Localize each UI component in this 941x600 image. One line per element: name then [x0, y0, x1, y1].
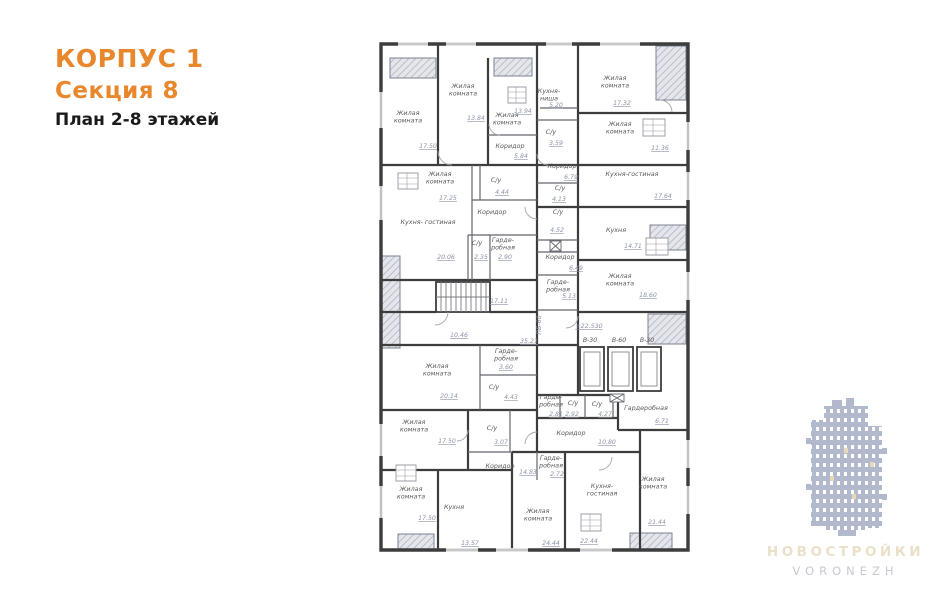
svg-text:комната: комната — [426, 177, 454, 185]
section-title: Секция 8 — [55, 78, 219, 104]
floorplan-page: КОРПУС 1 Секция 8 План 2-8 этажей — [0, 0, 941, 600]
svg-text:17.50: 17.50 — [438, 438, 456, 445]
svg-text:13.57: 13.57 — [461, 540, 479, 547]
svg-text:комната: комната — [423, 369, 451, 377]
balcony-top-right — [656, 46, 686, 100]
svg-text:3.59: 3.59 — [549, 140, 563, 147]
svg-text:комната: комната — [493, 118, 521, 126]
svg-text:Коридор: Коридор — [556, 429, 585, 437]
svg-text:С/у: С/у — [555, 184, 566, 192]
svg-text:35.21: 35.21 — [520, 338, 538, 345]
svg-text:Кухня-гостиная: Кухня-гостиная — [605, 170, 658, 178]
svg-text:13.84: 13.84 — [467, 115, 485, 122]
svg-text:6.79: 6.79 — [564, 174, 578, 181]
svg-text:ПБ-60: ПБ-60 — [536, 315, 543, 334]
elevators — [580, 347, 661, 391]
svg-text:робная: робная — [490, 243, 515, 251]
svg-text:В-30: В-30 — [583, 337, 597, 344]
svg-text:2.92: 2.92 — [565, 411, 579, 418]
svg-text:6.49: 6.49 — [569, 265, 583, 272]
svg-text:С/у: С/у — [472, 239, 483, 247]
svg-text:11.36: 11.36 — [651, 145, 669, 152]
svg-text:В-60: В-60 — [612, 337, 626, 344]
plan-subtitle: План 2-8 этажей — [55, 110, 219, 130]
svg-text:комната: комната — [449, 89, 477, 97]
svg-text:2.72: 2.72 — [550, 471, 564, 478]
svg-text:2.81: 2.81 — [549, 411, 563, 418]
svg-text:комната: комната — [400, 425, 428, 433]
svg-text:Коридор: Коридор — [477, 208, 506, 216]
svg-text:робная: робная — [493, 354, 518, 362]
svg-text:Гардеробная: Гардеробная — [624, 404, 668, 412]
svg-text:3.60: 3.60 — [499, 364, 513, 371]
svg-text:13.94: 13.94 — [514, 108, 532, 115]
svg-text:комната: комната — [524, 514, 552, 522]
svg-text:робная: робная — [538, 461, 563, 469]
svg-text:17.11: 17.11 — [490, 298, 508, 305]
svg-text:17.64: 17.64 — [654, 193, 672, 200]
elevator-labels: В-30В-60В-30 — [583, 337, 654, 344]
svg-text:17.32: 17.32 — [613, 100, 631, 107]
watermark-title: НОВОСТРОЙКИ — [758, 544, 933, 560]
svg-text:10.46: 10.46 — [450, 332, 468, 339]
svg-text:Коридор: Коридор — [547, 162, 576, 170]
floorplan-drawing: Жилаякомната17.50Жилаякомната13.84Жилаяк… — [368, 28, 698, 562]
svg-text:комната: комната — [606, 127, 634, 135]
svg-text:Кухня: Кухня — [444, 503, 464, 511]
balcony-bottom-left — [398, 534, 434, 549]
svg-text:Коридор: Коридор — [495, 142, 524, 150]
svg-text:22.44: 22.44 — [580, 538, 598, 545]
staircase — [436, 282, 490, 312]
svg-text:С/у: С/у — [491, 176, 502, 184]
svg-text:В-30: В-30 — [640, 337, 654, 344]
svg-text:С/у: С/у — [568, 399, 579, 407]
svg-text:5.84: 5.84 — [514, 153, 528, 160]
svg-text:Коридор: Коридор — [545, 253, 574, 261]
svg-text:3.07: 3.07 — [494, 439, 508, 446]
svg-text:4.43: 4.43 — [504, 394, 518, 401]
svg-text:5.20: 5.20 — [549, 102, 563, 109]
svg-text:14.83: 14.83 — [519, 469, 537, 476]
svg-text:комната: комната — [394, 116, 422, 124]
svg-text:2.35: 2.35 — [474, 254, 488, 261]
svg-text:5.13: 5.13 — [562, 293, 576, 300]
svg-text:Кухня: Кухня — [606, 226, 626, 234]
balcony-bottom-right — [630, 533, 672, 549]
svg-text:18.60: 18.60 — [639, 292, 657, 299]
svg-text:6.71: 6.71 — [655, 418, 669, 425]
building-title: КОРПУС 1 — [55, 44, 219, 73]
svg-text:4.27: 4.27 — [598, 411, 612, 418]
watermark-building-icon — [786, 398, 906, 538]
svg-text:2.90: 2.90 — [498, 254, 512, 261]
svg-text:4.44: 4.44 — [495, 189, 509, 196]
svg-text:17.25: 17.25 — [439, 195, 457, 202]
svg-text:С/у: С/у — [489, 383, 500, 391]
svg-text:24.44: 24.44 — [542, 540, 560, 547]
svg-text:21.44: 21.44 — [648, 519, 666, 526]
balcony-top-left — [390, 58, 436, 78]
elevator-1 — [580, 347, 604, 391]
svg-text:гостиная: гостиная — [587, 489, 618, 497]
svg-text:С/у: С/у — [553, 208, 564, 216]
svg-text:робная: робная — [538, 400, 563, 408]
svg-text:+22.530: +22.530 — [575, 323, 602, 330]
watermark-subtitle: VORONEZH — [758, 564, 933, 578]
svg-text:17.50: 17.50 — [418, 515, 436, 522]
svg-text:Коридор: Коридор — [485, 462, 514, 470]
svg-text:17.50: 17.50 — [419, 143, 437, 150]
balcony-left — [382, 256, 400, 348]
svg-text:14.71: 14.71 — [624, 243, 642, 250]
title-block: КОРПУС 1 Секция 8 План 2-8 этажей — [55, 44, 219, 130]
svg-text:комната: комната — [601, 81, 629, 89]
svg-text:С/у: С/у — [592, 400, 603, 408]
balcony-top-middle — [494, 58, 532, 76]
svg-text:Кухня- гостиная: Кухня- гостиная — [400, 218, 455, 226]
svg-text:комната: комната — [639, 482, 667, 490]
svg-text:10.80: 10.80 — [598, 439, 616, 446]
svg-text:комната: комната — [606, 279, 634, 287]
svg-text:4.52: 4.52 — [550, 227, 564, 234]
svg-text:С/у: С/у — [546, 128, 557, 136]
svg-text:С/у: С/у — [487, 424, 498, 432]
elevator-3 — [637, 347, 661, 391]
svg-text:4.13: 4.13 — [552, 196, 566, 203]
svg-text:20.14: 20.14 — [440, 393, 458, 400]
elevator-2 — [608, 347, 633, 391]
svg-text:20.06: 20.06 — [437, 254, 455, 261]
watermark: НОВОСТРОЙКИ VORONEZH — [758, 398, 933, 578]
svg-text:комната: комната — [397, 492, 425, 500]
